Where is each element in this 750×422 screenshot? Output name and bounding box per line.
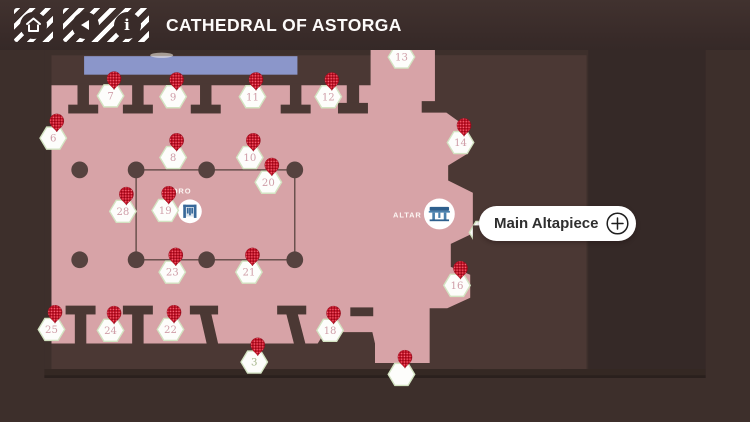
home-button[interactable] <box>14 8 53 42</box>
app-screen: i CATHEDRAL OF ASTORGA <box>0 0 750 422</box>
svg-text:10: 10 <box>243 153 256 164</box>
poi-callout[interactable]: Main Altapiece <box>479 206 636 241</box>
map-bottom-edge <box>44 369 705 378</box>
header-bar: i CATHEDRAL OF ASTORGA <box>0 0 750 50</box>
apse-wall-cover <box>473 225 561 369</box>
svg-text:11: 11 <box>246 92 259 103</box>
choir-organ-poi[interactable] <box>178 199 202 223</box>
altar-label: ALTAR <box>393 210 422 219</box>
add-poi-button[interactable] <box>606 212 629 235</box>
svg-text:12: 12 <box>322 92 335 103</box>
back-button[interactable] <box>72 12 99 39</box>
info-button[interactable]: i <box>114 12 141 39</box>
map-marker-25[interactable]: 25 <box>38 305 64 340</box>
organ-icon <box>183 205 196 218</box>
floorplan-map[interactable]: CORO 79111213681014202819232116252422183… <box>0 50 750 422</box>
svg-text:20: 20 <box>262 178 275 189</box>
svg-text:22: 22 <box>164 325 177 336</box>
svg-text:13: 13 <box>395 53 408 64</box>
svg-text:16: 16 <box>451 281 464 292</box>
nav-button-group: i <box>63 8 149 42</box>
svg-text:24: 24 <box>104 326 117 337</box>
svg-text:3: 3 <box>251 358 257 369</box>
svg-text:8: 8 <box>170 153 176 164</box>
info-icon: i <box>124 18 130 33</box>
svg-text:6: 6 <box>50 134 56 145</box>
svg-text:7: 7 <box>107 91 113 102</box>
svg-text:23: 23 <box>166 268 179 279</box>
page-title: CATHEDRAL OF ASTORGA <box>166 15 402 36</box>
svg-text:19: 19 <box>159 206 172 217</box>
svg-text:18: 18 <box>324 326 337 337</box>
callout-label: Main Altapiece <box>494 215 598 232</box>
svg-text:14: 14 <box>454 138 467 149</box>
svg-text:21: 21 <box>242 268 255 279</box>
home-icon <box>20 12 47 39</box>
back-arrow-icon <box>79 19 91 31</box>
plus-icon <box>606 212 629 235</box>
map-marker-6[interactable]: 6 <box>40 114 66 149</box>
svg-text:9: 9 <box>170 92 176 103</box>
svg-text:25: 25 <box>45 325 58 336</box>
svg-text:28: 28 <box>116 207 129 218</box>
